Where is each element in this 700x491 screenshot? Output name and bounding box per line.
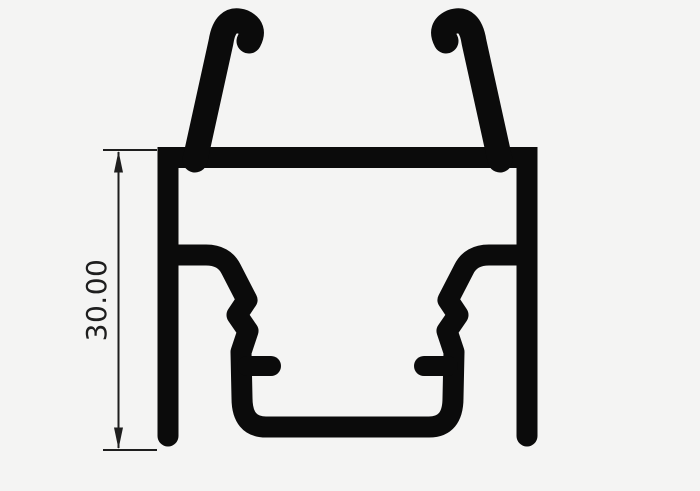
extrusion-profile xyxy=(167,21,528,436)
dimension-annotation: 30.00 xyxy=(80,150,157,450)
dimension-label: 30.00 xyxy=(80,259,113,342)
profile-inner-channel xyxy=(167,255,528,427)
drawing-canvas: 30.00 xyxy=(0,0,700,491)
profile-right-prong-hook xyxy=(444,21,500,160)
extrusion-profile-drawing: 30.00 xyxy=(0,0,700,491)
dimension-arrow-up-icon xyxy=(114,151,123,173)
dimension-arrow-down-icon xyxy=(114,428,123,450)
profile-left-prong-hook xyxy=(195,21,251,160)
profile-outer-frame xyxy=(168,158,527,437)
